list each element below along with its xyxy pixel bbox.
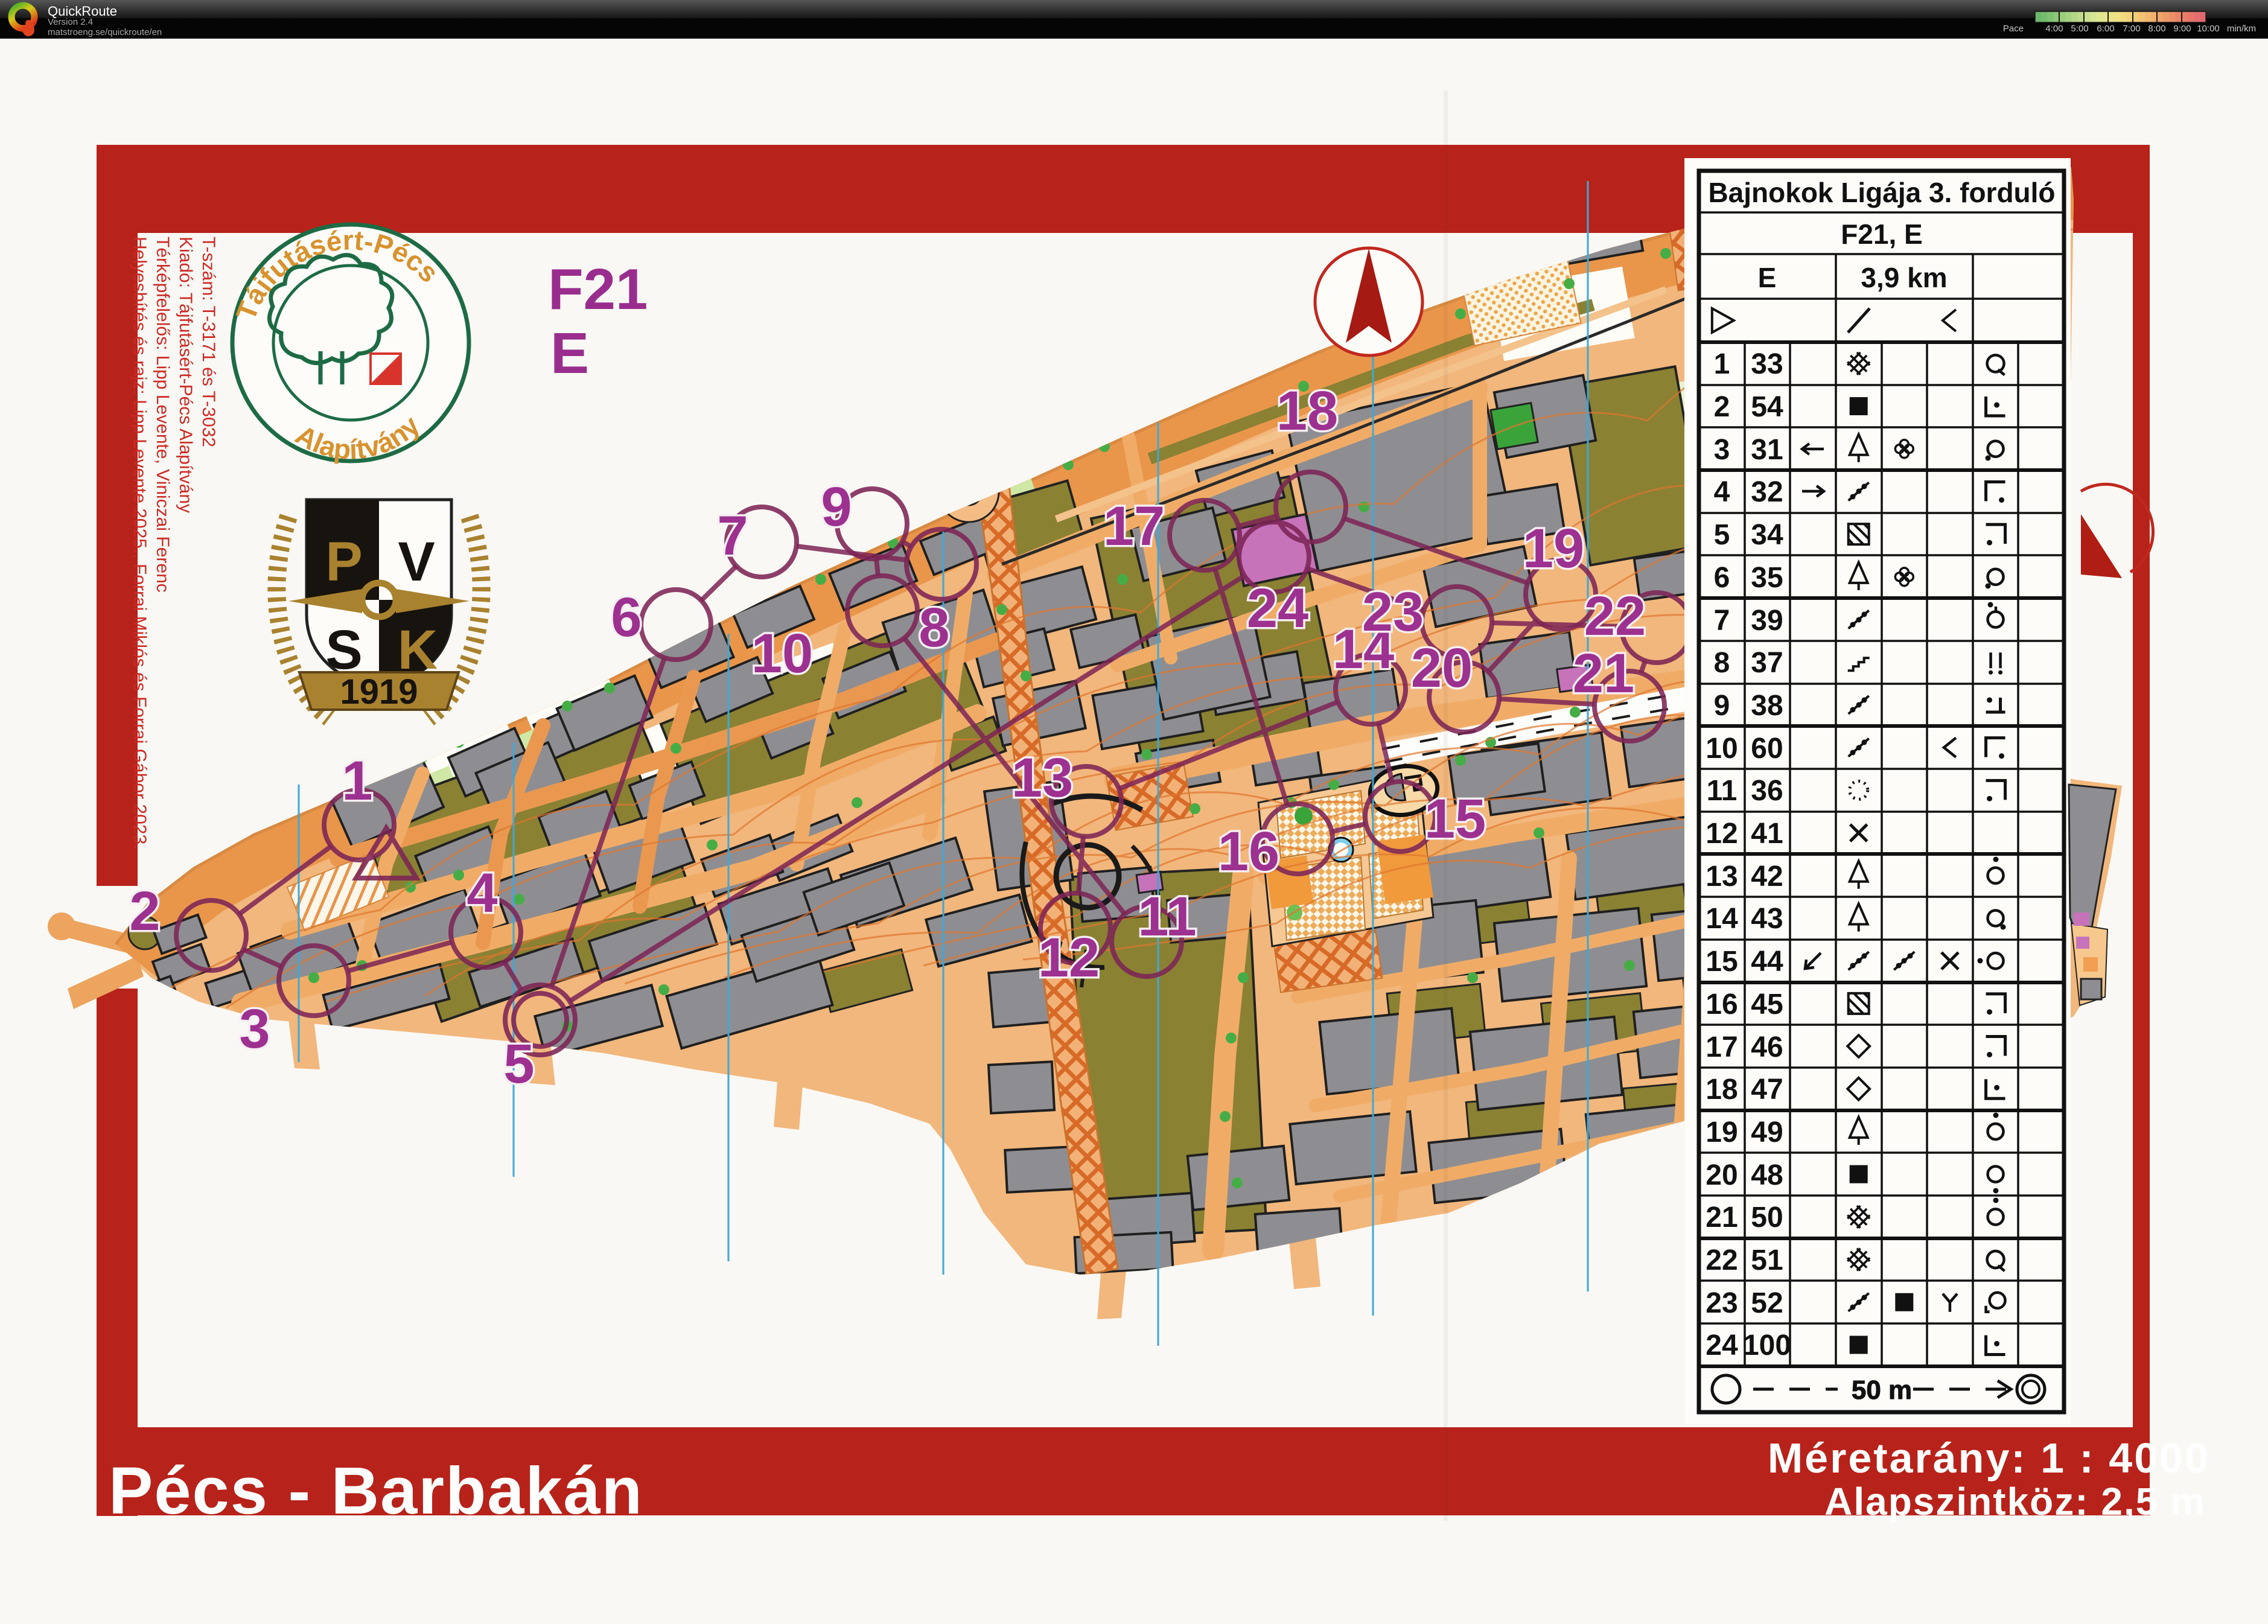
- svg-text:V: V: [398, 531, 435, 593]
- svg-text:20: 20: [1411, 637, 1473, 699]
- svg-text:6:00: 6:00: [2097, 24, 2114, 34]
- svg-text:37: 37: [1751, 647, 1783, 679]
- svg-text:P: P: [325, 531, 362, 593]
- svg-text:5: 5: [1714, 519, 1730, 551]
- svg-text:5:00: 5:00: [2071, 24, 2088, 34]
- svg-text:min/km: min/km: [2227, 24, 2256, 34]
- svg-text:13: 13: [1706, 861, 1738, 893]
- svg-text:46: 46: [1751, 1031, 1783, 1063]
- svg-text:3: 3: [1714, 434, 1730, 466]
- svg-text:16: 16: [1218, 821, 1279, 882]
- svg-text:10: 10: [751, 623, 813, 684]
- svg-text:1: 1: [342, 750, 372, 812]
- svg-text:Bajnokok Ligája 3. forduló: Bajnokok Ligája 3. forduló: [1708, 177, 2055, 208]
- svg-text:6: 6: [1714, 562, 1730, 594]
- svg-text:45: 45: [1751, 989, 1783, 1021]
- svg-text:35: 35: [1751, 562, 1783, 594]
- svg-text:7: 7: [1714, 605, 1730, 637]
- svg-text:3: 3: [239, 998, 270, 1060]
- svg-text:51: 51: [1751, 1244, 1783, 1276]
- svg-text:60: 60: [1751, 733, 1783, 765]
- svg-text:22: 22: [1584, 585, 1646, 647]
- svg-text:9:00: 9:00: [2173, 24, 2191, 34]
- svg-text:6: 6: [611, 587, 642, 648]
- svg-text:11: 11: [1707, 775, 1738, 807]
- svg-text:33: 33: [1751, 348, 1783, 380]
- svg-text:Méretarány: 1 : 4000: Méretarány: 1 : 4000: [1768, 1435, 2210, 1482]
- svg-text:14: 14: [1706, 903, 1738, 935]
- svg-text:41: 41: [1751, 818, 1783, 850]
- svg-text:matstroeng.se/quickroute/en: matstroeng.se/quickroute/en: [48, 27, 162, 37]
- svg-text:21: 21: [1573, 643, 1634, 704]
- svg-text:11: 11: [1138, 886, 1196, 947]
- svg-text:13: 13: [1011, 747, 1073, 809]
- svg-text:50 m: 50 m: [1852, 1375, 1912, 1405]
- svg-text:18: 18: [1706, 1074, 1738, 1106]
- svg-text:47: 47: [1751, 1074, 1783, 1106]
- svg-text:3,9 km: 3,9 km: [1861, 262, 1947, 293]
- svg-text:Pécs - Barbakán: Pécs - Barbakán: [109, 1454, 643, 1528]
- svg-text:19: 19: [1706, 1116, 1738, 1148]
- svg-text:18: 18: [1276, 380, 1338, 442]
- svg-text:49: 49: [1751, 1116, 1783, 1148]
- svg-text:15: 15: [1424, 788, 1486, 850]
- svg-text:24: 24: [1247, 578, 1308, 639]
- svg-text:34: 34: [1751, 519, 1783, 551]
- svg-text:10:00: 10:00: [2197, 24, 2220, 34]
- svg-text:23: 23: [1706, 1287, 1738, 1319]
- svg-text:31: 31: [1751, 434, 1783, 466]
- svg-text:15: 15: [1706, 946, 1738, 978]
- svg-text:7: 7: [717, 505, 748, 567]
- svg-text:17: 17: [1103, 495, 1165, 557]
- svg-text:4:00: 4:00: [2045, 24, 2063, 34]
- svg-text:F21: F21: [548, 257, 648, 322]
- svg-text:T-szám: T-3171 és T-3032: T-szám: T-3171 és T-3032: [199, 237, 218, 447]
- svg-text:10: 10: [1706, 733, 1738, 765]
- svg-text:39: 39: [1751, 605, 1783, 637]
- svg-text:Pace: Pace: [2003, 24, 2024, 34]
- svg-text:100: 100: [1743, 1329, 1791, 1361]
- svg-text:8: 8: [919, 597, 949, 658]
- svg-text:17: 17: [1706, 1031, 1738, 1063]
- svg-text:43: 43: [1751, 903, 1783, 935]
- svg-text:Kiadó: Tájfutásért-Pécs Alapít: Kiadó: Tájfutásért-Pécs Alapítvány: [176, 237, 196, 513]
- svg-text:23: 23: [1362, 581, 1424, 643]
- svg-text:44: 44: [1751, 946, 1783, 978]
- svg-text:7:00: 7:00: [2123, 24, 2140, 34]
- svg-text:22: 22: [1706, 1244, 1738, 1276]
- svg-text:8: 8: [1714, 647, 1730, 679]
- svg-text:12: 12: [1038, 927, 1100, 989]
- svg-text:5: 5: [503, 1033, 534, 1095]
- svg-text:54: 54: [1751, 391, 1783, 423]
- svg-text:36: 36: [1751, 775, 1783, 807]
- svg-text:Alapszintköz: 2,5 m: Alapszintköz: 2,5 m: [1824, 1480, 2206, 1523]
- svg-text:9: 9: [1714, 690, 1730, 722]
- svg-text:2: 2: [1714, 391, 1730, 423]
- svg-text:E: E: [550, 321, 589, 386]
- svg-text:24: 24: [1706, 1329, 1738, 1361]
- svg-text:42: 42: [1751, 861, 1783, 893]
- svg-text:2: 2: [129, 880, 160, 942]
- svg-text:32: 32: [1751, 476, 1783, 508]
- svg-text:9: 9: [821, 476, 852, 538]
- svg-text:21: 21: [1706, 1202, 1738, 1234]
- svg-text:16: 16: [1706, 989, 1738, 1021]
- svg-text:Térképfelelős: Lipp Levente, V: Térképfelelős: Lipp Levente, Viniczai Fe…: [153, 237, 173, 593]
- svg-text:F21, E: F21, E: [1841, 218, 1923, 250]
- svg-text:12: 12: [1706, 818, 1738, 850]
- svg-text:4: 4: [1714, 476, 1730, 508]
- svg-text:8:00: 8:00: [2148, 24, 2165, 34]
- svg-text:52: 52: [1751, 1287, 1783, 1319]
- svg-text:1919: 1919: [340, 672, 418, 712]
- svg-text:38: 38: [1751, 690, 1783, 722]
- svg-text:4: 4: [467, 862, 497, 924]
- svg-text:19: 19: [1523, 518, 1584, 579]
- svg-text:Version 2.4: Version 2.4: [48, 17, 93, 27]
- svg-text:48: 48: [1751, 1159, 1783, 1191]
- svg-text:E: E: [1758, 262, 1777, 293]
- svg-text:20: 20: [1706, 1159, 1738, 1191]
- svg-text:Helyesbítés és rajz: Lipp Leve: Helyesbítés és rajz: Lipp Levente 2025.,…: [130, 237, 150, 850]
- svg-text:1: 1: [1714, 348, 1730, 380]
- svg-text:50: 50: [1751, 1202, 1783, 1234]
